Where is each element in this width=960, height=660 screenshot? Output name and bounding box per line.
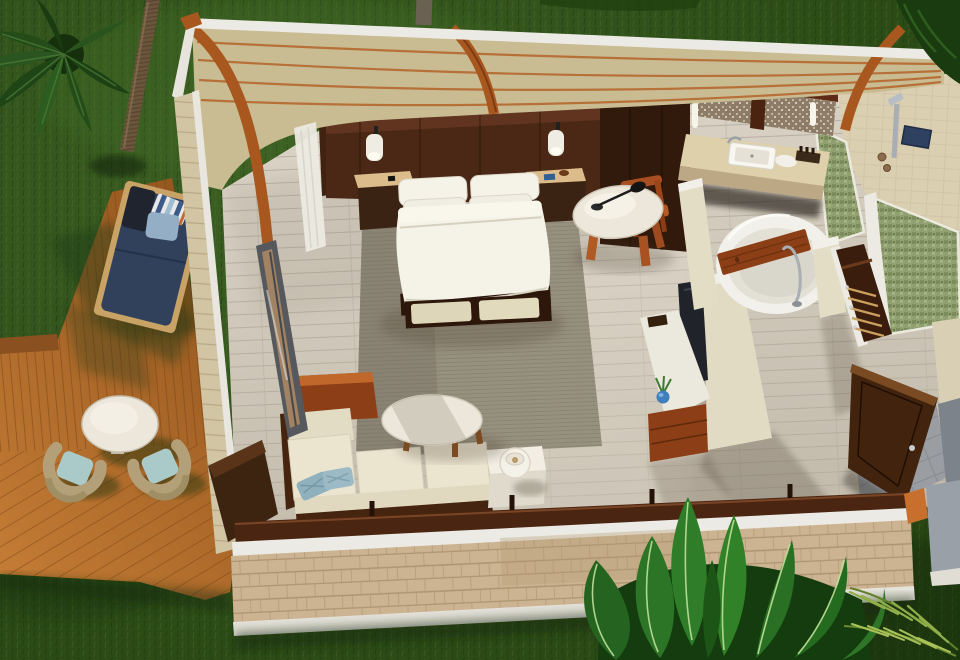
- lamp-glow: [551, 147, 562, 155]
- rain-shower-head: [902, 126, 932, 148]
- phone: [388, 176, 395, 181]
- sconce-left: [692, 102, 698, 128]
- corner-post-orange: [904, 488, 928, 524]
- lantern-shadow: [513, 480, 547, 496]
- shower-knob: [878, 153, 886, 161]
- shell-ornament: [559, 170, 569, 176]
- console-front: [648, 404, 708, 462]
- candle: [512, 457, 518, 463]
- trunk-base-shadow: [90, 155, 146, 177]
- villa-rendering: [0, 0, 960, 660]
- bench-cushion-left: [411, 301, 472, 324]
- daybed-blue-pillow: [145, 211, 180, 241]
- sconce-right: [810, 102, 816, 126]
- bed: [393, 172, 553, 329]
- distant-trunk: [415, 0, 432, 25]
- tabletop-highlight: [90, 402, 138, 434]
- vase-highlight: [659, 393, 664, 397]
- blue-vase: [657, 391, 670, 404]
- hanger-clip: [849, 305, 853, 309]
- bench-cushion-right: [479, 297, 540, 320]
- gray-corner-wall: [926, 480, 960, 578]
- lamp-glow: [368, 152, 380, 160]
- scene-canvas: [0, 0, 960, 660]
- door-handle: [909, 445, 915, 451]
- blue-book: [544, 174, 555, 181]
- table-leg: [452, 442, 458, 457]
- filler-base: [792, 301, 802, 307]
- hanger-clip: [853, 325, 857, 329]
- hanger-clip: [845, 285, 849, 289]
- shower-knob: [884, 165, 891, 172]
